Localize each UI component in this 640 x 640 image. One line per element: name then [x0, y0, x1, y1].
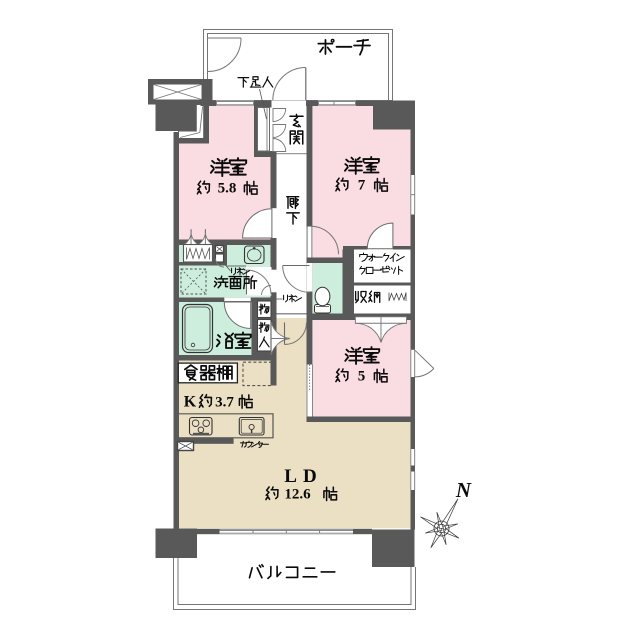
svg-text:K: K	[184, 394, 197, 411]
svg-text:3.7: 3.7	[215, 394, 234, 410]
svg-text:12.6: 12.6	[284, 487, 311, 503]
svg-text:LD: LD	[284, 466, 322, 487]
svg-text:5: 5	[358, 369, 366, 385]
svg-text:7: 7	[358, 178, 366, 194]
svg-text:N: N	[455, 478, 472, 502]
svg-text:5.8: 5.8	[218, 181, 237, 197]
